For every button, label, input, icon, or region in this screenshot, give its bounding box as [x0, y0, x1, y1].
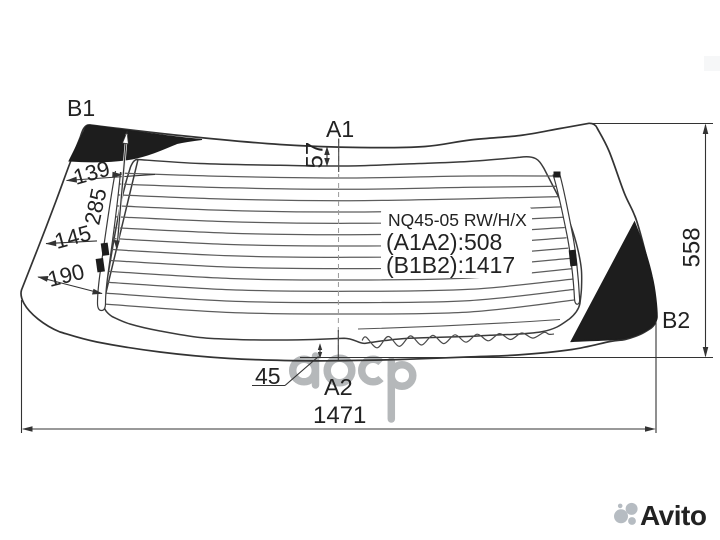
svg-text:A2: A2 [324, 374, 353, 400]
svg-text:A1: A1 [326, 116, 354, 142]
svg-text:B2: B2 [662, 307, 690, 333]
svg-text:(B1B2):1417: (B1B2):1417 [386, 252, 515, 278]
svg-text:558: 558 [679, 227, 706, 267]
svg-text:Avito: Avito [640, 500, 707, 531]
svg-text:57: 57 [302, 142, 329, 169]
svg-text:45: 45 [255, 363, 281, 389]
svg-text:B1: B1 [67, 95, 95, 121]
svg-text:1471: 1471 [313, 402, 366, 429]
svg-text:NQ45-05 RW/H/X: NQ45-05 RW/H/X [388, 210, 527, 230]
